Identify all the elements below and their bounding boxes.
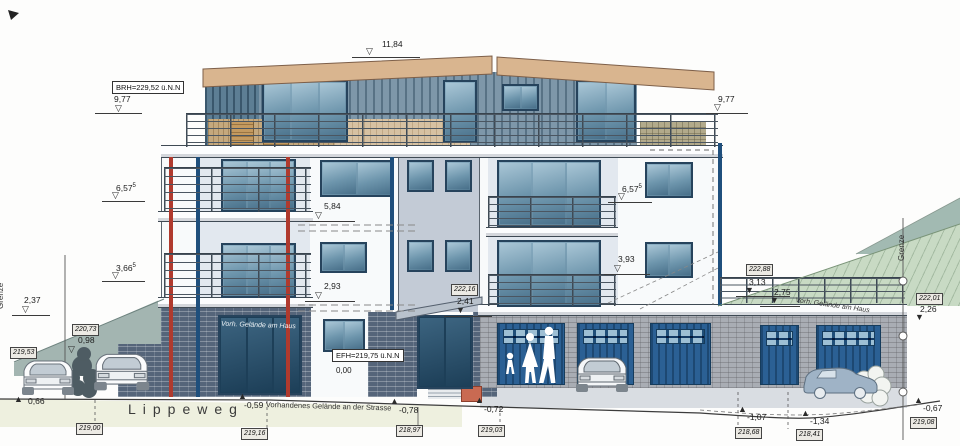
- level-marker-triangle-floor1-left: ▽: [112, 271, 119, 280]
- window-pane: [670, 165, 690, 195]
- elevation-drawing: BRH=229,52 ü.N.N EFH=219,75 ü.N.N 0,00 L…: [0, 0, 960, 446]
- balcony-slab-left-2: [158, 297, 313, 308]
- level-marker-triangle-street-3: ▲: [390, 397, 399, 406]
- window: [320, 242, 367, 273]
- window: [445, 240, 472, 272]
- balcony-slab-left-1: [158, 211, 313, 222]
- window-glazing: [409, 242, 432, 270]
- level-marker-triangle-street-4: ▲: [475, 396, 484, 405]
- level-marker-mid-lower: 2,93: [324, 282, 341, 291]
- level-marker-triangle-mid-upper: ▽: [315, 211, 322, 220]
- level-marker-line-mid-upper: [305, 221, 355, 222]
- level-marker-triangle-street-2: ▲: [238, 392, 247, 401]
- window-pane: [323, 245, 343, 270]
- window-pane: [358, 163, 391, 194]
- window-pane: [522, 87, 537, 108]
- level-marker-ridge: 11,84: [382, 40, 403, 49]
- window-glazing: [322, 244, 365, 271]
- efh-zero-label: 0,00: [336, 366, 352, 375]
- level-marker-triangle-garage-roof-1: ▼: [745, 286, 754, 295]
- elevation-box-e-219-03: 219,03: [478, 425, 505, 437]
- balcony-slab-right: [486, 227, 618, 237]
- level-marker-line-floor1-right: [604, 274, 650, 275]
- level-marker-triangle-brh-left: ▽: [115, 104, 122, 113]
- level-marker-mid-upper: 5,84: [324, 202, 341, 211]
- street-name: Lippeweg: [128, 401, 244, 417]
- window-glazing: [409, 162, 432, 190]
- level-marker-triangle-floor2-left: ▽: [112, 191, 119, 200]
- window: [320, 160, 394, 197]
- balcony-railing-right-2: [488, 274, 616, 306]
- level-marker-line-brh-right: [706, 113, 748, 114]
- window-glazing: [447, 242, 470, 270]
- window: [502, 84, 539, 111]
- level-marker-ground-6: -1,34: [810, 417, 829, 426]
- window: [645, 242, 693, 278]
- garage-door-3: [650, 323, 711, 385]
- window-pane: [448, 243, 469, 269]
- balcony-railing-left-2: [164, 253, 311, 298]
- boundary-label-left: Grenze: [0, 283, 5, 309]
- entrance-door: [417, 315, 473, 389]
- elevation-box-e-219-53: 219,53: [10, 347, 37, 359]
- elevation-box-e-218-97: 218,97: [396, 425, 423, 437]
- level-marker-line-wall-left: [12, 315, 50, 316]
- window-pane: [410, 243, 431, 269]
- window-pane: [345, 322, 362, 349]
- window-pane: [410, 163, 431, 189]
- window-pane: [505, 87, 520, 108]
- elevation-box-e-218-68: 218,68: [735, 427, 762, 439]
- level-marker-triangle-ground-5: ▲: [738, 405, 747, 414]
- level-marker-triangle-mid-lower: ▽: [315, 291, 322, 300]
- window: [407, 240, 434, 272]
- garage-door-panes: [822, 331, 875, 346]
- efh-reference-box: EFH=219,75 ü.N.N: [332, 349, 404, 362]
- level-marker-triangle-ridge: ▽: [366, 47, 373, 56]
- level-marker-line-floor2-right: [608, 202, 652, 203]
- level-marker-street-2: -0,59: [244, 401, 263, 410]
- level-marker-triangle-ground-6: ▲: [801, 409, 810, 418]
- terrace-railing: [186, 113, 718, 147]
- level-marker-street-3: -0,78: [399, 406, 418, 415]
- level-marker-street-1: 0,66: [28, 397, 45, 406]
- balcony-railing-right-1: [488, 196, 616, 228]
- garage-door-1: [497, 323, 565, 385]
- elevation-box-e-222-88: 222,88: [746, 264, 773, 276]
- level-marker-triangle-garage-roof-2: ▼: [770, 296, 779, 305]
- window-pane: [420, 318, 444, 386]
- elevation-box-e-219-08: 219,08: [910, 417, 937, 429]
- window-glazing: [419, 317, 471, 387]
- window-glazing: [447, 162, 470, 190]
- level-marker-line-brh-left: [95, 113, 142, 114]
- window-pane: [670, 245, 690, 275]
- window-glazing: [647, 244, 691, 276]
- window-glazing: [504, 86, 537, 109]
- level-marker-triangle-floor1-right: ▽: [614, 264, 621, 273]
- level-marker-gelaende-left: 0,98: [78, 336, 95, 345]
- garage-door-panes: [503, 329, 559, 344]
- garage-door-4: [760, 325, 799, 385]
- window-glazing: [325, 321, 363, 350]
- window: [645, 162, 693, 198]
- garage-door-panes: [583, 329, 628, 344]
- level-marker-street-4: -0,72: [484, 405, 503, 414]
- window: [323, 319, 365, 352]
- elevation-box-e-219-16: 219,16: [241, 428, 268, 440]
- window-pane: [648, 245, 668, 275]
- level-marker-triangle-ground-7: ▲: [914, 396, 923, 405]
- brh-reference-box: BRH=229,52 ü.N.N: [112, 81, 184, 94]
- level-marker-triangle-brh-right: ▽: [714, 103, 721, 112]
- garage-forecourt: [480, 385, 907, 408]
- elevation-box-e-222-01: 222,01: [916, 293, 943, 305]
- level-marker-ground-7: -0,67: [923, 404, 942, 413]
- window-pane: [221, 318, 246, 392]
- level-marker-triangle-gelaende-left: ▽: [68, 345, 75, 354]
- elevation-box-e-222-16: 222,16: [451, 284, 478, 296]
- level-marker-line-mid-lower: [305, 301, 355, 302]
- window-glazing: [322, 162, 392, 195]
- window-pane: [448, 163, 469, 189]
- window-pane: [326, 322, 343, 349]
- level-marker-line-floor1-left: [102, 281, 145, 282]
- window-glazing: [647, 164, 691, 196]
- level-marker-triangle-wall-left: ▽: [22, 305, 29, 314]
- level-marker-triangle-street-1: ▲: [14, 395, 23, 404]
- garage-door-2: [577, 323, 634, 385]
- level-marker-triangle-entry-canopy: ▼: [456, 306, 465, 315]
- level-marker-ground-5: -1,07: [747, 413, 766, 422]
- boundary-label-right: Grenze: [897, 235, 906, 261]
- corner-mark: [8, 10, 19, 20]
- window: [445, 160, 472, 192]
- level-marker-line-garage-roof-2: [760, 306, 800, 307]
- level-marker-line-entry-canopy: [444, 316, 492, 317]
- window-pane: [446, 318, 470, 386]
- elevation-box-e-219-00: 219,00: [76, 423, 103, 435]
- window-pane: [323, 163, 356, 194]
- window-pane: [345, 245, 365, 270]
- balcony-railing-left-1: [164, 167, 311, 212]
- level-marker-triangle-floor2-right: ▽: [618, 192, 625, 201]
- level-marker-line-ridge: [352, 57, 420, 58]
- elevation-box-e-220-73: 220,73: [72, 324, 99, 336]
- garage-door-panes: [656, 329, 705, 344]
- retaining-wall: [118, 344, 165, 397]
- level-marker-line-floor2-left: [102, 201, 145, 202]
- elevation-box-e-218-41: 218,41: [796, 429, 823, 441]
- level-marker-triangle-gelaende-right: ▼: [915, 313, 924, 322]
- window: [407, 160, 434, 192]
- column-blue-2: [390, 157, 394, 310]
- garage-door-5: [816, 325, 881, 385]
- garage-door-panes: [766, 331, 793, 346]
- window-pane: [648, 165, 668, 195]
